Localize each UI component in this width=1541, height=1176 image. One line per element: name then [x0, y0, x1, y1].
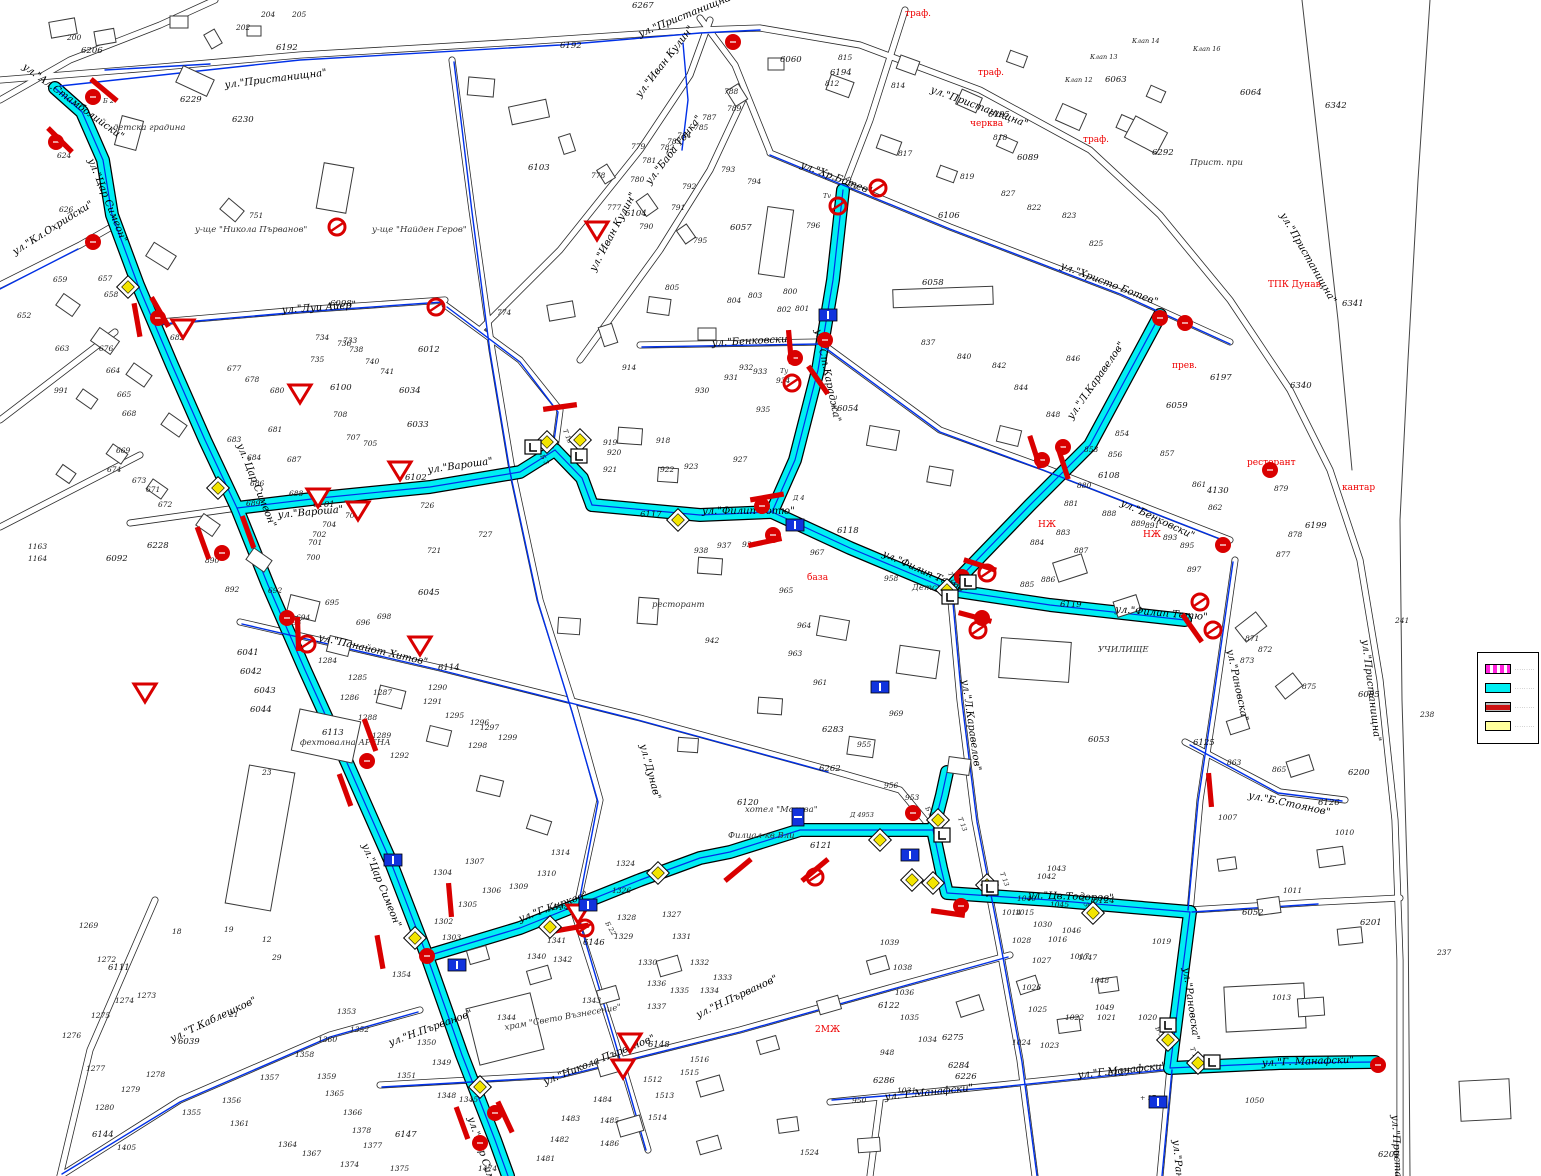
parcel-number: 931	[724, 373, 738, 382]
parcel-number: 1016	[1048, 935, 1067, 944]
section-bar-marker	[446, 883, 454, 917]
parcel-number: 895	[1180, 541, 1195, 550]
parcel-number: 657	[98, 274, 113, 283]
red-annotation: НЖ	[1038, 520, 1056, 530]
parcel-number: 883	[1056, 528, 1071, 537]
no-stopping-bar	[331, 223, 343, 231]
parcel-number: 787	[702, 113, 717, 122]
parcel-number: 671	[146, 485, 160, 494]
street-code: 6108	[1098, 471, 1120, 481]
parcel-number: 872	[1258, 645, 1273, 654]
yield-sign-icon	[134, 684, 156, 702]
landmark-label: ресторант	[652, 600, 705, 610]
parcel-number: 880	[1077, 481, 1092, 490]
parcel-number: 893	[1163, 533, 1178, 542]
parcel-number: 698	[377, 612, 392, 621]
section-bar-marker	[1206, 773, 1214, 807]
parcel-number: 1025	[1028, 1005, 1047, 1014]
pipe-line	[577, 913, 646, 1150]
building	[1286, 755, 1314, 778]
street-code: 6045	[418, 588, 440, 598]
building	[1053, 554, 1088, 582]
road-fill	[452, 60, 600, 915]
parcel-number: 1299	[498, 733, 517, 742]
red-annotation: кантар	[1342, 483, 1375, 493]
parcel-number: 726	[420, 501, 435, 510]
building	[936, 165, 957, 182]
table-sign-icon	[525, 440, 541, 454]
building	[220, 198, 244, 222]
parcel-number: 1164	[28, 554, 47, 563]
parcel-number: 1354	[392, 970, 411, 979]
parcel-number: 800	[783, 287, 798, 296]
building	[476, 775, 503, 796]
street-name-label: ул."Баба Тонка"	[643, 114, 704, 188]
building	[617, 427, 642, 445]
parcel-number: 884	[1030, 538, 1045, 547]
parcel-number: 795	[693, 236, 708, 245]
parcel-number: 1285	[348, 673, 367, 682]
parcel-number: 1336	[647, 979, 666, 988]
parcel-number: 1302	[434, 917, 453, 926]
parcel-number: 680	[270, 386, 285, 395]
legend-label: ..........	[1515, 666, 1534, 671]
parcel-number: 1304	[433, 868, 452, 877]
street-code: 6262	[819, 764, 841, 774]
parcel-number: 871	[1245, 634, 1259, 643]
landmark-label: детска градина	[113, 123, 185, 133]
parcel-number: 1377	[363, 1141, 382, 1150]
parcel-number: 1163	[28, 542, 47, 551]
parcel-number: 803	[748, 291, 763, 300]
parcel-number: 1269	[79, 921, 98, 930]
landmark-label: Прист. при	[1189, 158, 1243, 168]
parcel-number: 932	[739, 363, 754, 372]
parcel-number: 919	[603, 438, 618, 447]
parcel-number: 1050	[1245, 1096, 1264, 1105]
parcel-number: 1351	[397, 1071, 416, 1080]
street-code: 6057	[730, 223, 752, 233]
parcel-number: 918	[656, 436, 671, 445]
parcel-number: 672	[158, 500, 173, 509]
parcel-number: 837	[921, 338, 936, 347]
parcel-number: 1013	[1272, 993, 1291, 1002]
parcel-number: 1273	[137, 991, 156, 1000]
parcel-number: 669	[116, 446, 131, 455]
street-code: 6114	[438, 663, 460, 673]
street-name-label: ул."Луи Айер"	[280, 300, 356, 316]
parcel-number: 676	[99, 344, 114, 353]
parcel-number: 1328	[617, 913, 636, 922]
red-annotation: 2МЖ	[815, 1025, 840, 1035]
street-name-label: ул."Пристанищна"	[1277, 210, 1338, 305]
landmark-label: хотел "Москва"	[745, 805, 818, 815]
building	[678, 737, 699, 752]
street-code: 6267	[632, 1, 654, 11]
parcel-number: 862	[1208, 503, 1223, 512]
red-annotation: траф.	[1083, 135, 1109, 145]
parcel-number: 961	[813, 678, 827, 687]
parcel-number: 1046	[1062, 926, 1081, 935]
parcel-number: 842	[992, 361, 1007, 370]
parcel-number: 241	[1394, 616, 1409, 625]
parcel-number: 1274	[115, 996, 134, 1005]
parcel-number: 815	[838, 53, 853, 62]
parcel-number: 877	[1276, 550, 1291, 559]
parcel-number: 892	[225, 585, 240, 594]
parcel-number: 1343	[582, 996, 601, 1005]
red-annotation: база	[807, 572, 829, 583]
small-mark-label: Тv	[823, 192, 831, 200]
parcel-number: 1327	[662, 910, 681, 919]
parcel-number: 1482	[550, 1135, 569, 1144]
parcel-boundary	[1302, 0, 1352, 470]
parcel-number: 1342	[553, 955, 572, 964]
yield-sign-icon	[289, 385, 311, 403]
parcel-number: 704	[322, 520, 337, 529]
parcel-number: 964	[797, 621, 812, 630]
street-name-label: ул."Бенковски"	[711, 334, 793, 349]
street-code: 6033	[407, 420, 429, 430]
parcel-number: 23	[261, 768, 272, 777]
parcel-number: 1358	[295, 1050, 314, 1059]
parcel-number: 958	[884, 574, 899, 583]
parcel-number: 1030	[1033, 920, 1052, 929]
building	[896, 55, 920, 75]
street-code: 6284	[948, 1061, 970, 1071]
parcel-number: 734	[315, 333, 330, 342]
parcel-number: 1326	[612, 886, 631, 895]
parcel-number: 812	[825, 79, 840, 88]
parcel-number: 1047	[1078, 953, 1097, 962]
parcel-number: 1034	[918, 1035, 937, 1044]
street-code: 6125	[1193, 738, 1215, 748]
street-code: 6053	[1088, 735, 1110, 745]
building	[999, 638, 1072, 683]
parcel-number: 854	[1115, 429, 1130, 438]
road-fill	[1190, 898, 1400, 910]
street-code: 6052	[1242, 908, 1264, 918]
parcel-number: 1356	[222, 1096, 241, 1105]
street-code: 6119	[1060, 600, 1082, 610]
landmark-label: у-ще "Никола Първанов"	[194, 225, 307, 235]
parcel-number: 1355	[182, 1108, 201, 1117]
parcel-number: 1330	[638, 958, 657, 967]
parcel-number: 18	[172, 927, 182, 936]
building	[1337, 927, 1363, 945]
street-name-label: ул."Дунав"	[637, 742, 663, 801]
street-code: 6118	[837, 526, 859, 536]
street-code: 6192	[560, 41, 582, 51]
parcel-number: 1515	[680, 1068, 699, 1077]
parcel-number: 205	[291, 10, 307, 19]
parcel-number: 965	[779, 586, 794, 595]
street-code: 4130	[1206, 486, 1229, 496]
parcel-number: 1022	[1065, 1013, 1084, 1022]
parcel-number: 856	[1108, 450, 1123, 459]
parcel-number: 1307	[465, 857, 484, 866]
parcel-number: 237	[1436, 948, 1452, 957]
parcel-number: 1514	[648, 1113, 667, 1122]
parcel-number: 846	[1066, 354, 1081, 363]
parcel-number: 875	[1302, 682, 1317, 691]
street-code: 6230	[232, 115, 254, 125]
red-annotation: прев.	[1172, 361, 1197, 371]
small-mark-label: Тy	[780, 367, 788, 375]
street-code: 6342	[1325, 101, 1347, 111]
parcel-number: 814	[891, 81, 906, 90]
building	[758, 207, 793, 278]
map-legend: .......... .......... .......... .......…	[1477, 652, 1539, 744]
street-code: 6064	[1240, 88, 1262, 98]
street-name-label: ул."Филип Тотю"	[701, 506, 795, 517]
landmark-label: у-ще "Найден Геров"	[371, 225, 467, 235]
parcel-number: 791	[671, 203, 685, 212]
parcel-number: 1286	[340, 693, 359, 702]
parcel-number: 863	[1227, 758, 1242, 767]
parcel-number: 1334	[700, 986, 719, 995]
parcel-number: 721	[427, 546, 441, 555]
red-annotation: НЖ	[1143, 530, 1161, 540]
building	[94, 28, 116, 45]
table-sign-icon	[934, 828, 950, 842]
building	[509, 99, 550, 125]
section-bar-marker	[723, 857, 752, 883]
parcel-number: 705	[363, 439, 378, 448]
parcel-number: 873	[1240, 656, 1255, 665]
building	[756, 1036, 779, 1055]
parcel-number: 861	[1192, 480, 1206, 489]
building	[697, 557, 722, 575]
street-code: 6063	[1105, 75, 1127, 85]
parcel-number: 886	[1041, 575, 1056, 584]
parcel-number: 1007	[1218, 813, 1237, 822]
building	[1146, 85, 1165, 102]
parcel-number: 793	[721, 165, 736, 174]
building	[757, 697, 782, 715]
building	[866, 426, 899, 451]
parcel-number: 1512	[643, 1075, 662, 1084]
parcel-number: 1297	[480, 723, 499, 732]
parcel-number: 740	[365, 357, 380, 366]
road-fill	[60, 1010, 420, 1176]
building	[696, 1075, 723, 1097]
parcel-number: 825	[1089, 239, 1104, 248]
street-code: 6292	[1152, 148, 1174, 158]
parcel-number: 955	[857, 740, 872, 749]
building	[816, 995, 841, 1015]
legend-label: ..........	[1515, 704, 1534, 709]
parcel-number: 1324	[616, 859, 635, 868]
legend-swatch-cyan	[1485, 683, 1511, 693]
parcel-number: 1310	[537, 869, 556, 878]
parcel-number: 822	[1027, 203, 1042, 212]
parcel-number: 1278	[146, 1070, 165, 1079]
small-mark-label: Д 4	[792, 494, 805, 502]
parcel-number: 774	[497, 308, 512, 317]
street-code: 6113	[322, 728, 344, 738]
legend-swatch-yellow	[1485, 721, 1511, 731]
street-code: 6060	[780, 55, 802, 65]
parcel-number: 1359	[317, 1072, 336, 1081]
parcel-number: 897	[1187, 565, 1202, 574]
parcel-number: 751	[249, 211, 263, 220]
street-code: 6146	[583, 938, 605, 948]
building	[526, 815, 551, 835]
parcel-number: 1291	[423, 697, 442, 706]
building	[996, 426, 1021, 447]
parcel-number: 818	[993, 133, 1008, 142]
parcel-number: 692	[268, 586, 283, 595]
street-code: 6144	[92, 1130, 114, 1140]
landmark-label: Филиал-кв.Вли	[728, 831, 795, 841]
parcel-number: 678	[245, 375, 260, 384]
parcel-number: 1378	[352, 1126, 371, 1135]
street-code: 6044	[250, 705, 272, 715]
parcel-number: 923	[684, 462, 699, 471]
legend-label: ..........	[1515, 685, 1534, 690]
parcel-number: 963	[788, 649, 803, 658]
red-annotation: траф.	[978, 68, 1004, 78]
parcel-number: 948	[880, 1048, 895, 1057]
building	[316, 163, 354, 214]
building	[126, 363, 152, 387]
building	[1006, 50, 1027, 67]
parcel-number: 1023	[1040, 1041, 1059, 1050]
small-mark-label: Клап 13	[1089, 53, 1118, 61]
parcel-number: 1365	[325, 1089, 344, 1098]
parcel-number: 1513	[655, 1091, 674, 1100]
parcel-number: 741	[380, 367, 394, 376]
red-annotation: ТПК Дунав	[1268, 280, 1321, 290]
parcel-number: 658	[104, 290, 119, 299]
parcel-number: 819	[960, 172, 975, 181]
street-name-label: ул."Никола Първанов"	[541, 1033, 657, 1088]
parcel-number: 927	[733, 455, 748, 464]
building	[1224, 983, 1306, 1032]
small-mark-label: Клап 16	[1192, 45, 1221, 53]
parcel-number: 1277	[86, 1064, 105, 1073]
legend-swatch-magenta	[1485, 664, 1511, 674]
parcel-number: 1049	[1095, 1003, 1114, 1012]
building	[170, 16, 188, 28]
parcel-number: 938	[694, 546, 709, 555]
parcel-number: 677	[227, 364, 242, 373]
parcel-number: 1290	[428, 683, 447, 692]
parcel-number: 1481	[536, 1154, 555, 1163]
parcel-number: 1367	[302, 1149, 321, 1158]
legend-label: ..........	[1515, 723, 1534, 728]
legend-swatch-red	[1485, 702, 1511, 712]
parcel-number: 701	[308, 538, 322, 547]
parcel-number: 790	[639, 222, 654, 231]
parcel-number: 29	[271, 953, 282, 962]
street-code: 6092	[106, 554, 128, 564]
parcel-number: 1026	[1022, 983, 1041, 992]
no-stopping-bar	[1194, 598, 1206, 606]
street-code: 6206	[81, 46, 103, 56]
building	[146, 242, 177, 269]
no-stopping-bar	[301, 640, 313, 648]
parcel-number: 659	[53, 275, 68, 284]
street-code: 6041	[237, 648, 259, 658]
building	[777, 1117, 799, 1134]
street-code: 6089	[1017, 153, 1039, 163]
parcel-number: 950	[852, 1096, 867, 1105]
parcel-number: 788	[724, 87, 739, 96]
street-code: 6111	[108, 963, 130, 973]
parcel-number: 1288	[358, 713, 377, 722]
parcel-number: 792	[682, 182, 697, 191]
table-sign-icon	[1160, 1018, 1176, 1032]
parcel-number: 1484	[593, 1095, 612, 1104]
parcel-number: 1375	[390, 1164, 409, 1173]
street-name-label: ул."Рановска"	[1170, 1138, 1187, 1176]
street-code: 6106	[938, 211, 960, 221]
small-mark-label: Д 4953	[849, 811, 874, 819]
parcel-number: 935	[756, 405, 771, 414]
legend-row: ..........	[1485, 678, 1534, 697]
small-mark-label: Клап 12	[1064, 76, 1093, 84]
parcel-number: 930	[695, 386, 710, 395]
parcel-number: 1524	[800, 1148, 819, 1157]
parcel-number: 696	[356, 618, 371, 627]
table-sign-icon	[1204, 1055, 1220, 1069]
parcel-number: 1331	[672, 932, 691, 941]
parcel-number: 780	[630, 175, 645, 184]
parcel-number: 668	[122, 409, 137, 418]
table-sign-icon	[982, 881, 998, 895]
parcel-number: 1340	[527, 952, 546, 961]
parcel-boundary	[1400, 0, 1430, 1176]
parcel-number: 991	[54, 386, 68, 395]
parcel-number: 1019	[1152, 937, 1171, 946]
street-code: 6012	[418, 345, 440, 355]
building	[647, 297, 671, 316]
no-stopping-bar	[872, 184, 884, 192]
parcel-number: 853	[1084, 445, 1099, 454]
building	[526, 965, 551, 985]
parcel-number: 1349	[432, 1058, 451, 1067]
street-code: 6103	[528, 163, 550, 173]
parcel-number: 200	[66, 33, 82, 42]
parcel-number: 804	[727, 296, 742, 305]
parcel-number: 19	[224, 925, 234, 934]
road-outline	[452, 60, 600, 915]
street-code: 6059	[1166, 401, 1188, 411]
street-code: 6034	[399, 386, 421, 396]
building	[866, 956, 889, 975]
street-code: 6201	[1360, 918, 1382, 928]
parcel-number: 1011	[1283, 886, 1302, 895]
parcel-number: 796	[806, 221, 821, 230]
parcel-number: 1039	[880, 938, 899, 947]
parcel-number: 700	[306, 553, 321, 562]
building	[426, 726, 451, 747]
parcel-number: 844	[1014, 383, 1029, 392]
parcel-number: 881	[1064, 499, 1078, 508]
parcel-number: 683	[227, 435, 242, 444]
building	[76, 389, 98, 409]
parcel-number: 1305	[458, 900, 477, 909]
building	[656, 955, 682, 976]
parcel-number: 857	[1160, 449, 1175, 458]
parcel-number: 1035	[900, 1013, 919, 1022]
building	[1459, 1079, 1511, 1122]
parcel-number: 888	[1102, 509, 1117, 518]
parcel-number: 1483	[561, 1114, 580, 1123]
parcel-number: 956	[884, 781, 899, 790]
